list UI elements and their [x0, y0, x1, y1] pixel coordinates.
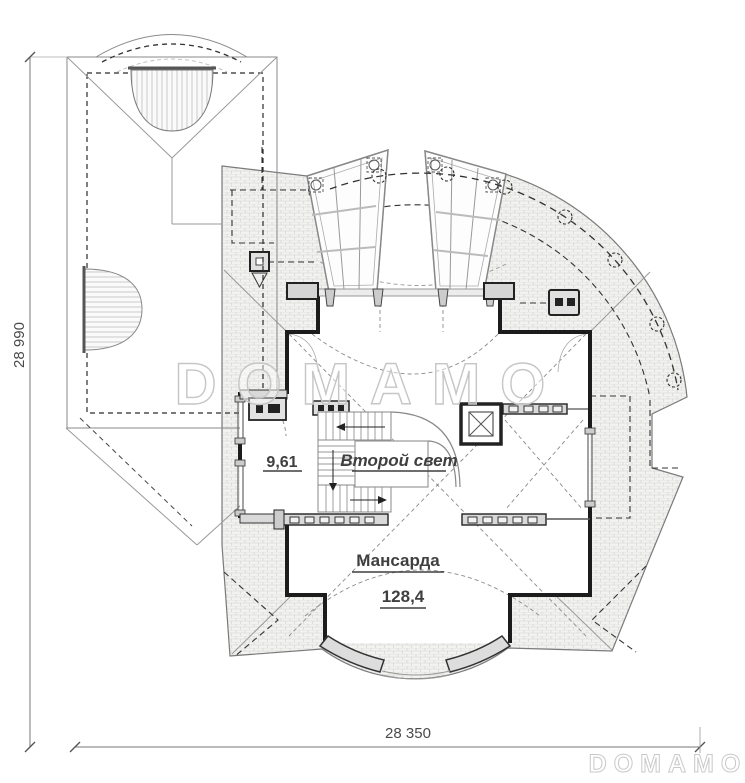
attic-area-label: 128,4: [382, 587, 425, 606]
small-room-area-label: 9,61: [266, 454, 297, 471]
dimension-horizontal: 28 350: [385, 725, 431, 742]
floor-plan-drawing: 9,61 Второй свет Мансарда 128,4 28 990 2…: [0, 0, 745, 783]
attic-label: Мансарда: [356, 551, 440, 570]
dimension-vertical: 28 990: [11, 322, 28, 368]
watermark-center: DOMAMO: [175, 352, 566, 417]
watermark-corner: DOMAMO: [589, 750, 745, 778]
vent-box-icon: [549, 290, 579, 315]
void-label: Второй свет: [340, 451, 457, 470]
floor-plan-page: 9,61 Второй свет Мансарда 128,4 28 990 2…: [0, 0, 745, 783]
